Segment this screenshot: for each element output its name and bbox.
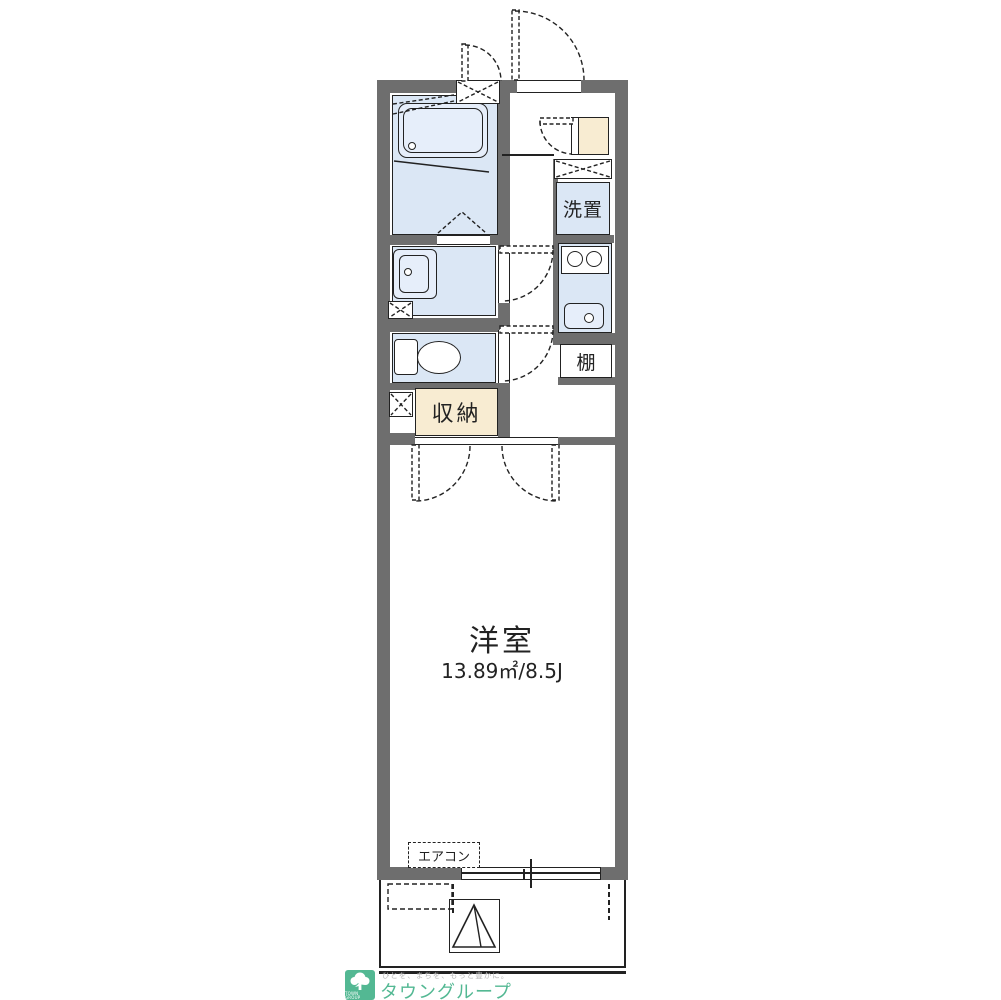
mainroom-area: 13.89㎡/8.5J bbox=[417, 656, 587, 682]
wall-segment bbox=[556, 235, 614, 243]
wall-segment bbox=[377, 80, 390, 880]
logo-caption: TOWN GROUP bbox=[345, 992, 375, 1000]
wall-segment bbox=[383, 235, 437, 245]
wall-segment bbox=[377, 867, 461, 880]
wall-segment bbox=[498, 383, 510, 443]
balcony-right-edge bbox=[624, 880, 626, 968]
stove-burner-right bbox=[586, 251, 602, 267]
sliding-window-tick-small bbox=[523, 869, 525, 879]
entrance-door-leaf bbox=[512, 10, 519, 80]
entrance-step-line bbox=[502, 154, 554, 156]
toilet-bowl bbox=[417, 341, 461, 374]
toilet-tank bbox=[394, 339, 418, 375]
wall-segment bbox=[377, 433, 415, 445]
toilet-door-opening bbox=[498, 330, 510, 383]
company-name: タウングループ bbox=[380, 978, 512, 1000]
floor-plan: 洗置 棚 収納 洋室 13.89㎡/8.5J エアコン TOWN GROUP ひ… bbox=[0, 0, 1001, 1000]
wall-segment bbox=[383, 318, 510, 332]
evacuation-hatch bbox=[449, 899, 500, 953]
bath-window-arc bbox=[465, 45, 501, 81]
bathroom-door-opening bbox=[437, 235, 490, 245]
washbasin-bowl bbox=[399, 255, 429, 293]
laundry-label: 洗置 bbox=[556, 182, 610, 235]
mainroom-door-leaf-right bbox=[552, 445, 559, 500]
washroom-door-opening bbox=[498, 250, 510, 303]
storage-label: 収納 bbox=[415, 388, 498, 436]
entrance-opening bbox=[517, 80, 581, 93]
washbasin-faucet bbox=[404, 268, 412, 276]
wall-segment bbox=[500, 80, 517, 93]
tree-icon bbox=[345, 970, 375, 992]
entrance-hall-door-arc bbox=[540, 121, 572, 154]
sliding-window-tick bbox=[530, 859, 532, 888]
bathtub-drain bbox=[408, 142, 416, 150]
company-logo: TOWN GROUP bbox=[345, 970, 375, 1000]
mainroom-name: 洋室 bbox=[417, 620, 587, 656]
kitchen-sink-drain bbox=[584, 313, 594, 323]
stove-burner-left bbox=[567, 251, 583, 267]
aircon-label: エアコン bbox=[408, 842, 480, 868]
wall-segment bbox=[601, 867, 628, 880]
bath-window-leaf bbox=[462, 44, 468, 81]
wall-segment bbox=[498, 93, 510, 250]
shelf-label: 棚 bbox=[560, 344, 612, 378]
entrance-hall-door-leaf bbox=[540, 118, 573, 124]
mainroom-door-leaf-left bbox=[412, 445, 419, 500]
shoe-cabinet bbox=[578, 117, 609, 155]
mainroom-door-opening bbox=[415, 437, 558, 445]
pipe-space-2 bbox=[389, 392, 413, 417]
wall-segment bbox=[615, 80, 628, 880]
entrance-door-arc bbox=[515, 11, 584, 80]
wall-segment bbox=[558, 437, 615, 445]
louver-window bbox=[456, 80, 500, 104]
balcony-bottom-edge bbox=[379, 966, 626, 968]
mainroom-door-arc-right bbox=[502, 446, 557, 501]
wall-segment bbox=[498, 303, 510, 330]
wall-segment bbox=[558, 377, 615, 385]
pipe-space-1 bbox=[388, 301, 413, 319]
balcony-dashed-box bbox=[388, 884, 452, 909]
upper-cabinet bbox=[554, 159, 612, 179]
balcony-left-edge bbox=[379, 880, 381, 968]
mainroom-door-arc-left bbox=[415, 446, 470, 501]
